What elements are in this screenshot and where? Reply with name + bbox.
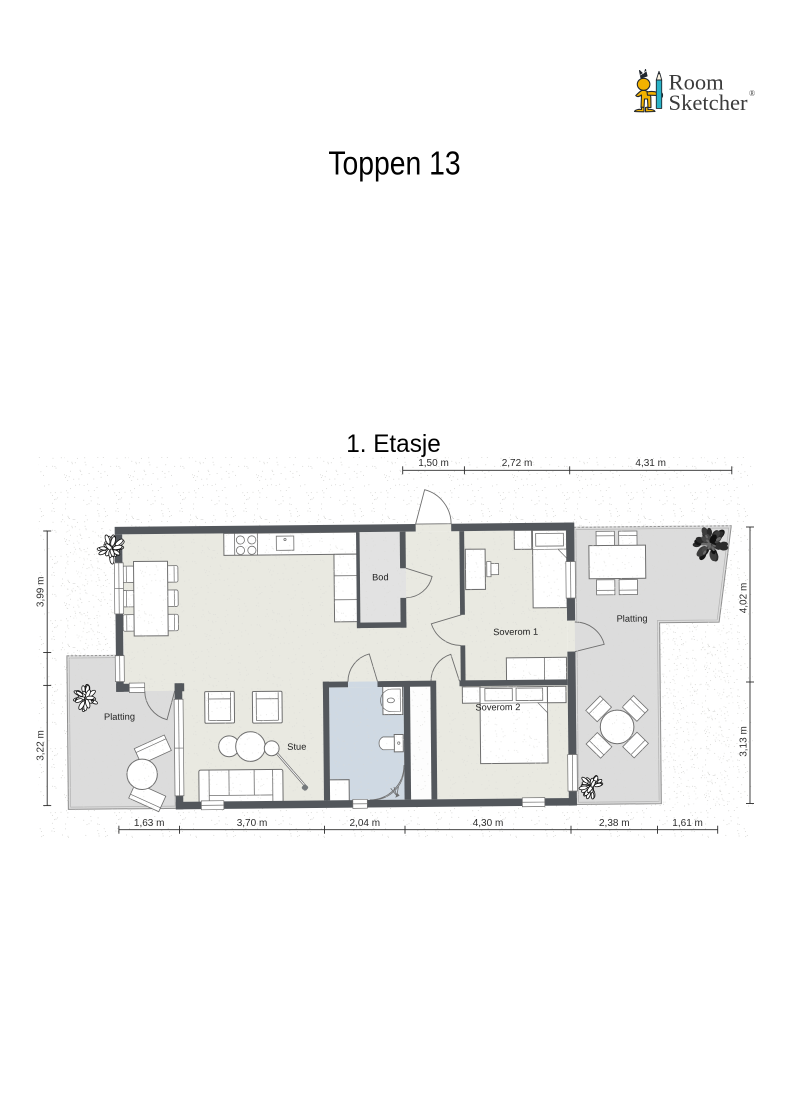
svg-text:2,72 m: 2,72 m — [502, 458, 533, 469]
svg-text:1,63 m: 1,63 m — [134, 818, 165, 829]
svg-text:1. Etasje: 1. Etasje — [346, 431, 441, 458]
svg-text:1,50 m: 1,50 m — [418, 458, 449, 469]
svg-text:Soverom 1: Soverom 1 — [493, 627, 538, 637]
svg-text:®: ® — [749, 89, 755, 98]
svg-text:Toppen 13: Toppen 13 — [328, 145, 460, 182]
svg-text:4,02 m: 4,02 m — [739, 583, 750, 614]
svg-text:Platting: Platting — [104, 712, 135, 722]
svg-text:2,38 m: 2,38 m — [599, 818, 630, 829]
svg-text:1,61 m: 1,61 m — [672, 818, 703, 829]
svg-text:4,30 m: 4,30 m — [473, 818, 504, 829]
svg-text:3,70 m: 3,70 m — [237, 818, 268, 829]
svg-text:Bod: Bod — [372, 572, 389, 582]
svg-text:2,04 m: 2,04 m — [350, 818, 381, 829]
svg-text:3,99 m: 3,99 m — [36, 577, 47, 608]
svg-text:Platting: Platting — [617, 614, 648, 624]
svg-text:Soverom 2: Soverom 2 — [475, 702, 520, 712]
svg-text:4,31 m: 4,31 m — [635, 458, 666, 469]
svg-text:3,22 m: 3,22 m — [36, 730, 47, 761]
svg-text:Sketcher: Sketcher — [669, 90, 749, 115]
svg-text:3,13 m: 3,13 m — [739, 726, 750, 757]
svg-text:Stue: Stue — [287, 742, 306, 752]
